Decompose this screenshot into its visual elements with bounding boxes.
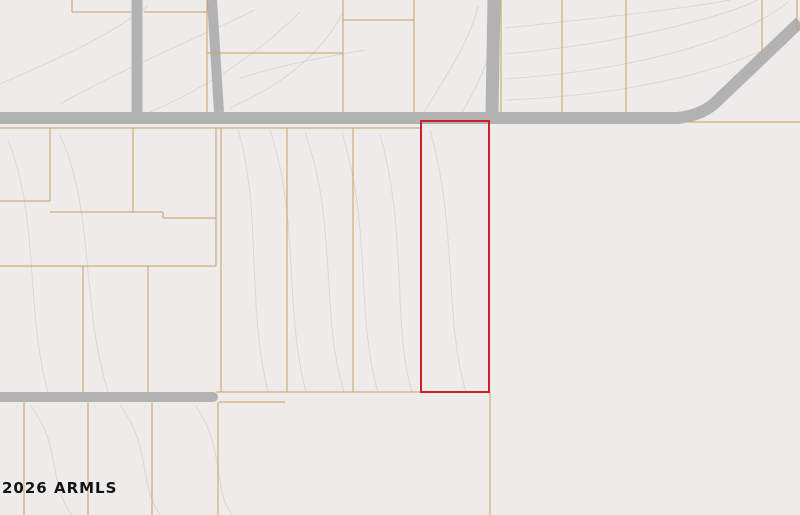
- contour-lines: [0, 0, 800, 515]
- copyright-watermark: 2026 ARMLS: [2, 479, 117, 497]
- map-graphics: [0, 0, 800, 515]
- highlighted-parcel-outline[interactable]: [421, 121, 489, 392]
- roads: [0, 0, 800, 397]
- plat-map[interactable]: 2026 ARMLS: [0, 0, 800, 515]
- road-vertical-256: [492, 0, 494, 112]
- road-honda-bow: [0, 22, 800, 118]
- road-n-unnamed: [212, 0, 219, 112]
